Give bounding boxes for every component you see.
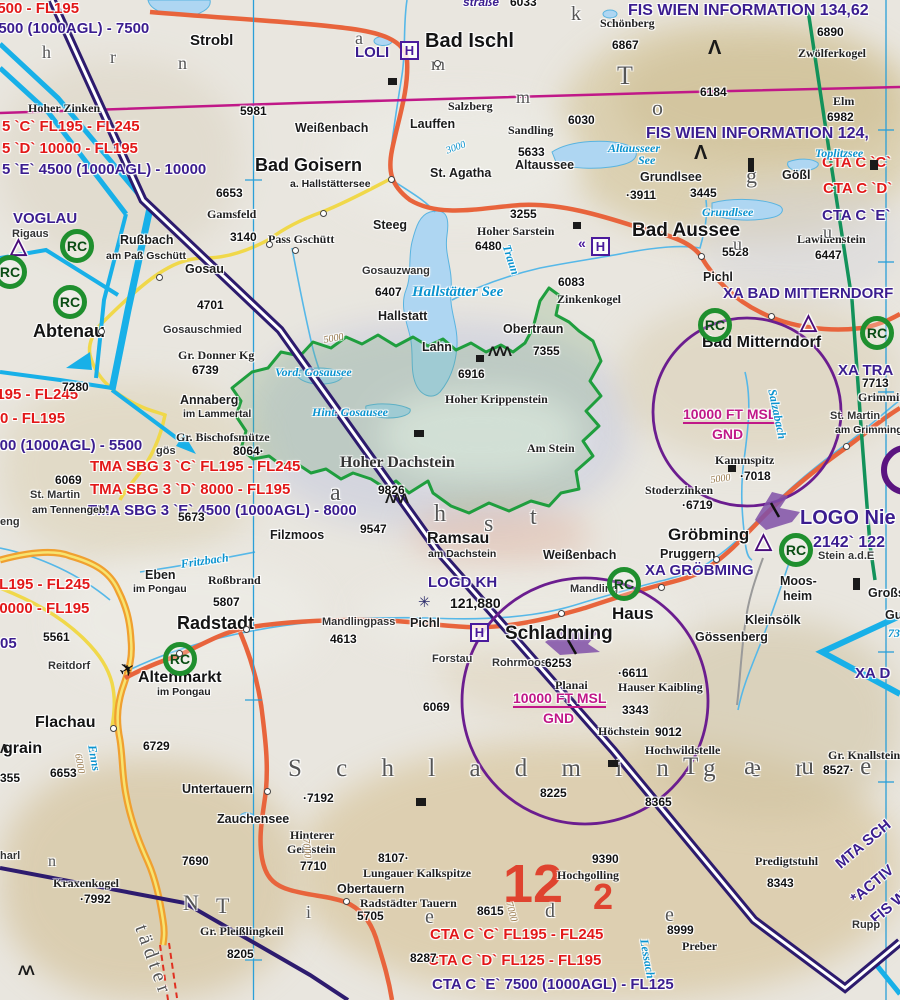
radio-mandatory-zone-badge: RC [607,567,641,601]
settlement-dot-icon [843,443,850,450]
settlement-dot-icon [320,210,327,217]
settlement-dot-icon [713,556,720,563]
building-icon [573,222,581,229]
settlement-dot-icon [658,584,665,591]
radio-mandatory-zone-badge: RC [163,642,197,676]
settlement-dot-icon [292,247,299,254]
building-icon [414,430,424,437]
settlement-dot-icon [434,60,441,67]
building-icon [476,355,484,362]
settlement-dot-icon [558,610,565,617]
settlement-dot-icon [264,788,271,795]
settlement-dot-icon [266,241,273,248]
settlement-dot-icon [156,274,163,281]
settlement-dot-icon [768,313,775,320]
heliport-icon: H [591,237,610,256]
settlement-dot-icon [343,898,350,905]
building-icon [608,760,618,767]
radio-mandatory-zone-badge: RC [60,229,94,263]
settlement-dot-icon [388,176,395,183]
radio-mandatory-zone-badge: RC [698,308,732,342]
building-icon [853,578,860,590]
map-symbols-layer: RCRCRCRCRCRCRCRCHHH [0,0,900,1000]
building-icon [728,465,736,472]
settlement-dot-icon [98,328,105,335]
vfr-chart-map[interactable]: 7500 - FL1954500 (1000AGL) - 75005 `C` F… [0,0,900,1000]
settlement-dot-icon [243,626,250,633]
building-icon [870,160,878,170]
building-icon [748,158,754,172]
building-icon [416,798,426,806]
heliport-icon: H [470,623,489,642]
radio-mandatory-zone-badge: RC [860,316,894,350]
settlement-dot-icon [698,253,705,260]
building-icon [388,78,397,85]
heliport-icon: H [400,41,419,60]
settlement-dot-icon [110,725,117,732]
radio-mandatory-zone-badge: RC [779,533,813,567]
radio-mandatory-zone-badge: RC [53,285,87,319]
settlement-dot-icon [176,650,183,657]
radio-mandatory-zone-badge: RC [0,255,27,289]
